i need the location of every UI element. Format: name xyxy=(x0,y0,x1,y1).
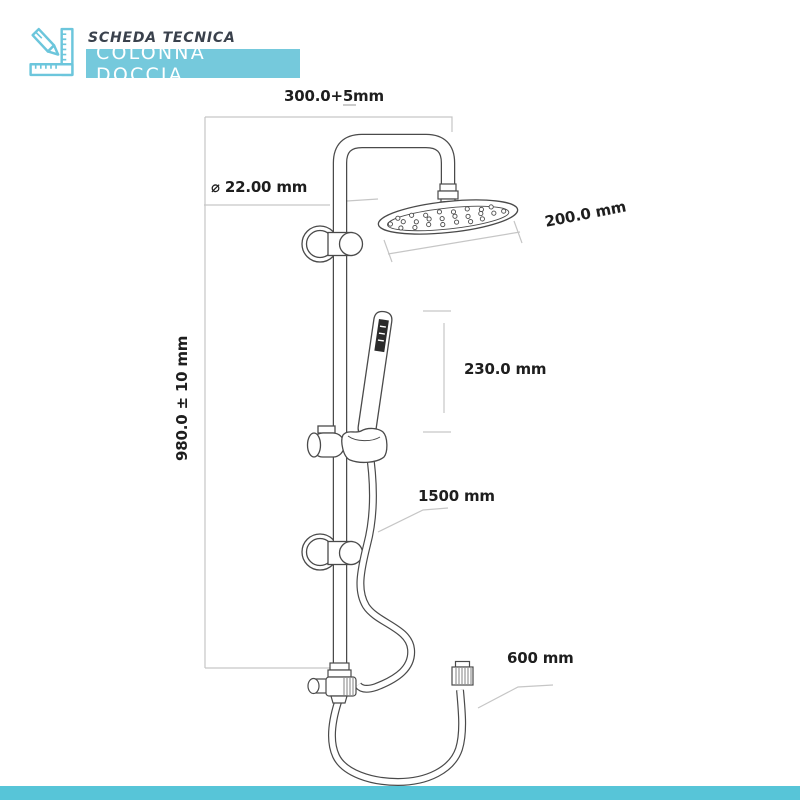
diverter-bottom-nut xyxy=(331,696,347,703)
hose-fitting xyxy=(452,662,473,686)
dim-label-pipe-diameter: ⌀ 22.00 mm xyxy=(211,178,307,196)
dim-label-column-height: 980.0 ± 10 mm xyxy=(173,337,191,461)
dim-label-shower-hose: 1500 mm xyxy=(418,487,495,505)
dim-label-handshower: 230.0 mm xyxy=(464,360,546,378)
shower-hose xyxy=(358,448,411,689)
rain-shower-head xyxy=(377,194,519,239)
outlet-hose xyxy=(332,690,462,782)
dim-label-top-width: 300.0+5mm xyxy=(284,87,384,105)
wall-bracket-bottom-knob xyxy=(328,542,363,565)
shower-column-drawing xyxy=(0,0,800,800)
diverter-body xyxy=(308,663,356,703)
hand-shower xyxy=(357,310,393,437)
wall-bracket-top-knob xyxy=(328,233,363,256)
dim-label-outlet-hose: 600 mm xyxy=(507,649,574,667)
bottom-accent-bar xyxy=(0,786,800,800)
technical-sheet: SCHEDA TECNICA COLONNA DOCCIA xyxy=(0,0,800,800)
